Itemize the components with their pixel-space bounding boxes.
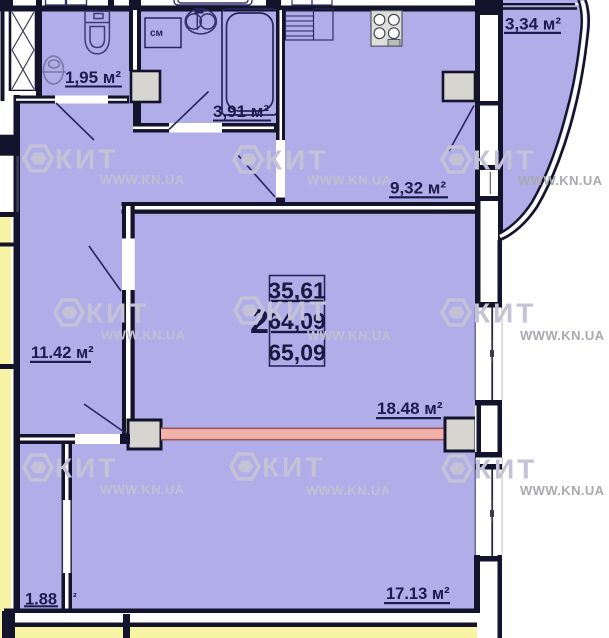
svg-text:65,09: 65,09	[268, 340, 326, 366]
svg-text:см: см	[150, 28, 163, 39]
svg-text:17.13 м²: 17.13 м²	[386, 585, 450, 603]
svg-text:КИТ: КИТ	[86, 298, 149, 329]
svg-text:WWW.KN.UA: WWW.KN.UA	[100, 482, 185, 497]
svg-text:11.42 м²: 11.42 м²	[31, 344, 94, 362]
svg-text:КИТ: КИТ	[55, 453, 118, 484]
svg-text:WWW.KN.UA: WWW.KN.UA	[306, 483, 391, 498]
svg-text:КИТ: КИТ	[473, 298, 536, 329]
svg-text:1,95 м²: 1,95 м²	[65, 68, 121, 87]
svg-text:9,32 м²: 9,32 м²	[390, 179, 446, 198]
svg-text:3,91 м²: 3,91 м²	[213, 102, 269, 121]
svg-text:²: ²	[73, 592, 77, 604]
svg-text:3,34 м²: 3,34 м²	[505, 15, 561, 34]
svg-text:WWW.KN.UA: WWW.KN.UA	[520, 483, 605, 498]
svg-text:КИТ: КИТ	[473, 145, 536, 176]
svg-text:WWW.KN.UA: WWW.KN.UA	[520, 328, 605, 343]
svg-text:WWW.KN.UA: WWW.KN.UA	[100, 172, 185, 187]
svg-text:КИТ: КИТ	[265, 145, 328, 176]
svg-text:WWW.KN.UA: WWW.KN.UA	[307, 173, 392, 188]
svg-text:WWW.KN.UA: WWW.KN.UA	[101, 328, 186, 343]
svg-text:18.48 м²: 18.48 м²	[377, 399, 443, 418]
svg-text:КИТ: КИТ	[262, 452, 325, 483]
svg-text:КИТ: КИТ	[266, 296, 329, 327]
svg-text:WWW.KN.UA: WWW.KN.UA	[518, 173, 603, 188]
svg-text:WWW.KN.UA: WWW.KN.UA	[307, 328, 392, 343]
svg-text:КИТ: КИТ	[55, 144, 118, 175]
svg-text:КИТ: КИТ	[474, 454, 537, 485]
